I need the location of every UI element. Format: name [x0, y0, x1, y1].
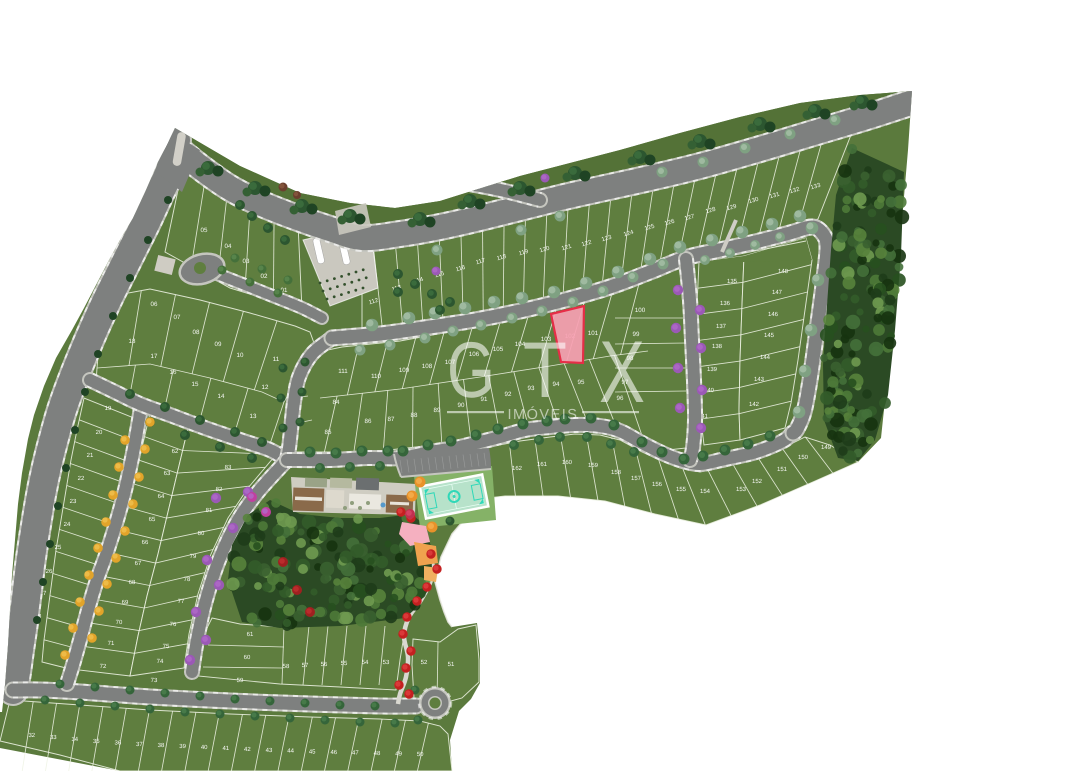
svg-text:43: 43: [266, 747, 273, 754]
svg-text:61: 61: [247, 631, 254, 638]
svg-text:73: 73: [151, 677, 158, 684]
svg-text:25: 25: [55, 544, 62, 551]
svg-text:08: 08: [193, 329, 200, 336]
svg-text:62: 62: [172, 448, 179, 455]
svg-text:48: 48: [374, 750, 381, 757]
svg-text:153: 153: [736, 486, 747, 493]
svg-text:24: 24: [64, 521, 71, 528]
svg-text:16: 16: [170, 369, 177, 376]
svg-text:59: 59: [237, 677, 244, 684]
svg-text:50: 50: [417, 751, 424, 758]
svg-text:144: 144: [760, 354, 771, 361]
svg-text:34: 34: [71, 736, 78, 743]
svg-text:95: 95: [578, 379, 585, 386]
svg-text:148: 148: [778, 268, 789, 275]
svg-text:76: 76: [170, 621, 177, 628]
svg-text:06: 06: [151, 301, 158, 308]
svg-text:143: 143: [754, 376, 765, 383]
svg-text:58: 58: [283, 663, 290, 670]
svg-text:92: 92: [505, 391, 512, 398]
svg-text:70: 70: [116, 619, 123, 626]
svg-text:136: 136: [720, 300, 731, 307]
svg-text:101: 101: [588, 330, 599, 337]
svg-text:69: 69: [122, 599, 129, 606]
svg-text:79: 79: [190, 553, 197, 560]
svg-text:46: 46: [330, 749, 337, 756]
svg-text:09: 09: [215, 341, 222, 348]
svg-text:154: 154: [700, 488, 711, 495]
svg-text:07: 07: [174, 314, 181, 321]
svg-text:40: 40: [201, 744, 208, 751]
svg-text:67: 67: [135, 560, 142, 567]
svg-text:37: 37: [136, 741, 143, 748]
svg-text:157: 157: [631, 475, 642, 482]
svg-text:32: 32: [28, 732, 35, 739]
svg-text:86: 86: [365, 418, 372, 425]
svg-text:33: 33: [50, 734, 57, 741]
svg-text:39: 39: [179, 743, 186, 750]
svg-text:47: 47: [352, 749, 359, 756]
svg-text:111: 111: [338, 368, 348, 375]
svg-text:64: 64: [158, 493, 165, 500]
svg-text:100: 100: [635, 307, 646, 314]
svg-text:04: 04: [225, 243, 232, 250]
svg-text:81: 81: [206, 507, 213, 514]
svg-text:T: T: [523, 325, 567, 414]
svg-text:63: 63: [164, 470, 171, 477]
svg-text:53: 53: [383, 659, 390, 666]
svg-text:139: 139: [707, 366, 718, 373]
svg-text:41: 41: [222, 745, 229, 752]
svg-text:60: 60: [244, 654, 251, 661]
svg-text:02: 02: [261, 273, 268, 280]
svg-text:17: 17: [151, 353, 158, 360]
svg-text:10: 10: [237, 352, 244, 359]
svg-text:54: 54: [362, 659, 369, 666]
svg-text:78: 78: [184, 576, 191, 583]
svg-text:G: G: [447, 325, 495, 414]
svg-text:51: 51: [448, 661, 455, 668]
svg-text:56: 56: [321, 661, 328, 668]
svg-text:147: 147: [772, 289, 783, 296]
svg-text:152: 152: [752, 478, 763, 485]
svg-text:42: 42: [244, 746, 251, 753]
svg-text:80: 80: [198, 530, 205, 537]
svg-text:158: 158: [611, 469, 622, 476]
svg-text:35: 35: [93, 738, 100, 745]
svg-text:05: 05: [201, 227, 208, 234]
svg-text:151: 151: [777, 466, 788, 473]
svg-text:18: 18: [129, 338, 136, 345]
svg-text:161: 161: [537, 461, 548, 468]
svg-text:11: 11: [273, 356, 280, 363]
svg-text:150: 150: [798, 454, 809, 461]
svg-text:45: 45: [309, 748, 316, 755]
svg-text:66: 66: [142, 539, 149, 546]
svg-text:71: 71: [108, 640, 115, 647]
svg-text:14: 14: [218, 393, 225, 400]
svg-text:156: 156: [652, 481, 663, 488]
svg-text:19: 19: [105, 405, 112, 412]
svg-text:162: 162: [512, 465, 523, 472]
svg-text:49: 49: [395, 750, 402, 757]
svg-text:142: 142: [749, 401, 760, 408]
svg-text:68: 68: [129, 579, 136, 586]
svg-text:83: 83: [225, 464, 232, 471]
svg-text:21: 21: [87, 452, 94, 459]
svg-text:15: 15: [192, 381, 199, 388]
svg-text:109: 109: [399, 367, 410, 374]
svg-text:138: 138: [712, 343, 723, 350]
svg-text:84: 84: [333, 399, 340, 406]
svg-text:X: X: [599, 322, 645, 421]
svg-text:159: 159: [588, 462, 599, 469]
svg-text:12: 12: [262, 384, 269, 391]
svg-text:146: 146: [768, 311, 779, 318]
svg-text:65: 65: [149, 516, 156, 523]
svg-text:89: 89: [434, 407, 441, 414]
svg-text:36: 36: [115, 740, 122, 747]
svg-text:149: 149: [821, 444, 832, 451]
svg-text:137: 137: [716, 323, 727, 330]
svg-text:23: 23: [70, 498, 77, 505]
svg-text:55: 55: [341, 660, 348, 667]
svg-text:77: 77: [178, 598, 185, 605]
svg-text:52: 52: [421, 659, 428, 666]
svg-text:IMÓVEIS: IMÓVEIS: [508, 406, 579, 423]
svg-text:85: 85: [325, 429, 332, 436]
svg-text:13: 13: [250, 413, 257, 420]
svg-text:03: 03: [243, 258, 250, 265]
svg-text:20: 20: [96, 429, 103, 436]
svg-text:44: 44: [287, 748, 294, 755]
svg-text:160: 160: [562, 459, 573, 466]
svg-text:22: 22: [78, 475, 85, 482]
svg-text:88: 88: [411, 412, 418, 419]
svg-text:155: 155: [676, 486, 687, 493]
svg-text:87: 87: [388, 416, 395, 423]
svg-text:26: 26: [46, 568, 53, 575]
svg-text:72: 72: [100, 663, 107, 670]
svg-text:38: 38: [158, 742, 165, 749]
svg-text:75: 75: [163, 643, 170, 650]
svg-text:108: 108: [422, 363, 433, 370]
svg-text:135: 135: [727, 278, 738, 285]
svg-text:110: 110: [371, 373, 381, 380]
svg-text:145: 145: [764, 332, 775, 339]
svg-text:74: 74: [157, 658, 164, 665]
svg-text:57: 57: [302, 662, 309, 669]
svg-text:82: 82: [216, 486, 223, 493]
